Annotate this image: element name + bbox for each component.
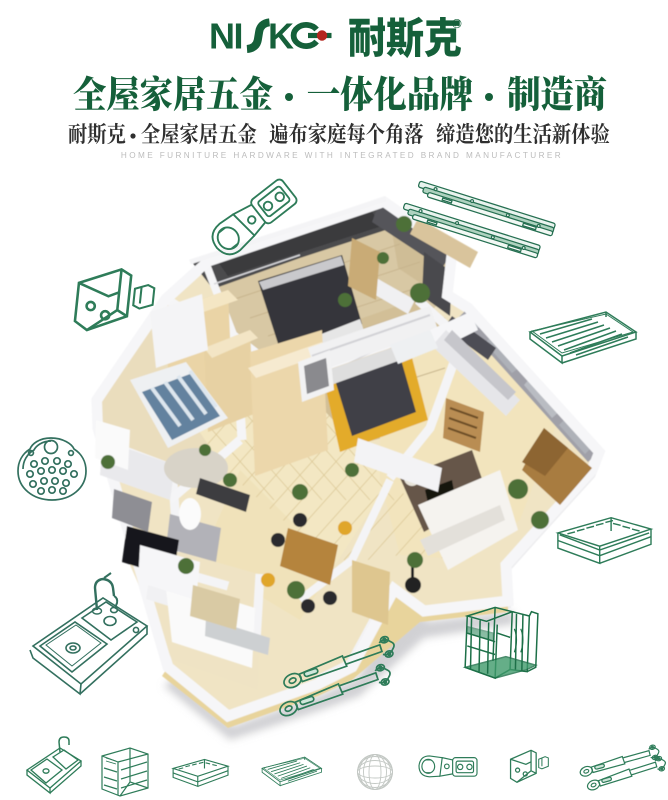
svg-text:NI: NI	[209, 16, 242, 57]
svg-text:®: ®	[452, 16, 462, 31]
svg-text:K: K	[268, 16, 294, 57]
svg-text:HOME FURNITURE HARDWARE WITH I: HOME FURNITURE HARDWARE WITH INTEGRATED …	[121, 151, 563, 160]
